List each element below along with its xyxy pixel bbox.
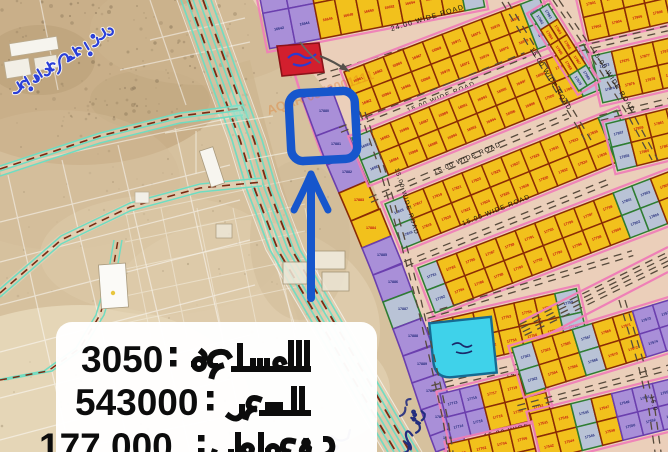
svg-text:17883: 17883	[354, 198, 364, 202]
svg-text:3050: 3050	[81, 339, 163, 380]
svg-text:177,000: 177,000	[39, 426, 173, 452]
svg-text:543000: 543000	[75, 382, 198, 423]
svg-text:17884: 17884	[366, 226, 376, 230]
svg-text:17881: 17881	[331, 142, 341, 146]
svg-text:17888: 17888	[408, 334, 418, 338]
svg-text:17886: 17886	[388, 280, 398, 284]
svg-text:17889: 17889	[417, 362, 427, 366]
svg-text:17882: 17882	[342, 170, 352, 174]
svg-text:17887: 17887	[398, 307, 408, 311]
svg-text:17880: 17880	[319, 109, 329, 113]
svg-text:17885: 17885	[377, 253, 387, 257]
